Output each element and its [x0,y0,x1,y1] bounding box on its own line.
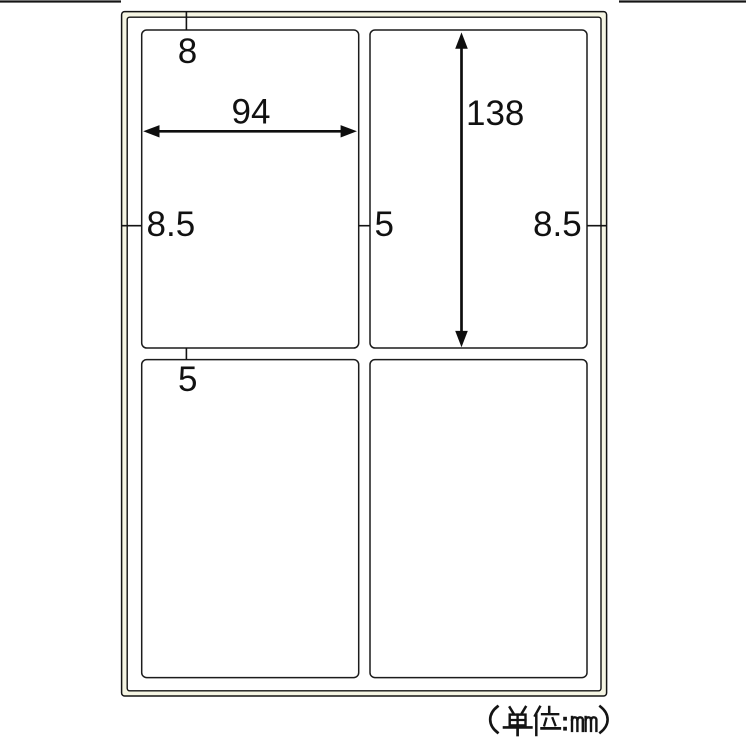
svg-text:8.5: 8.5 [533,205,582,244]
svg-text:94: 94 [232,93,271,132]
svg-text:138: 138 [466,94,524,133]
svg-text:5: 5 [178,360,197,399]
svg-text:8.5: 8.5 [147,205,196,244]
svg-text:8: 8 [178,32,197,71]
svg-text:5: 5 [375,205,394,244]
